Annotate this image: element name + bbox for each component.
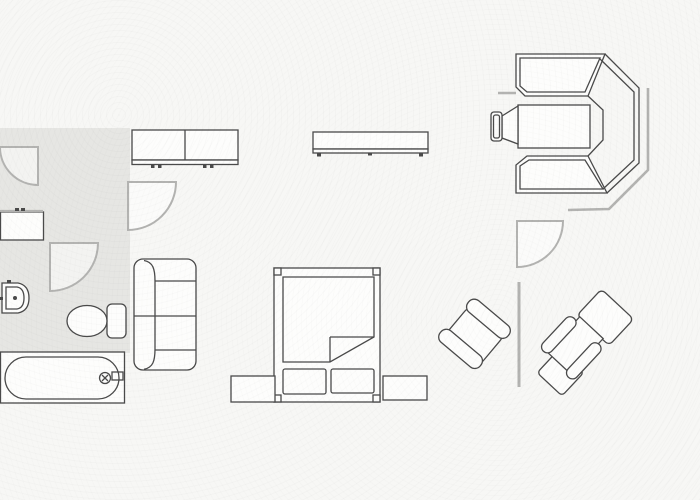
wall-cabinet [0, 208, 44, 240]
bed-post [373, 268, 380, 275]
toilet [67, 304, 126, 338]
toilet-cistern [107, 304, 126, 338]
bathtub [1, 352, 125, 403]
nightstand-left [231, 376, 275, 402]
floor-plan [0, 0, 700, 500]
sofa [134, 259, 196, 370]
corner-workstation [491, 54, 639, 193]
pillow [283, 369, 326, 394]
nightstand-right [383, 376, 427, 400]
armchair-left [436, 295, 513, 373]
floor-plan-canvas [0, 0, 700, 500]
armchair-right [525, 285, 633, 396]
bed-post [373, 395, 380, 402]
sofa-body [134, 259, 196, 370]
sideboard-body [313, 132, 428, 149]
top-counter [516, 54, 605, 96]
bed-post [274, 268, 281, 275]
double-bed [274, 268, 380, 402]
desk-chair [491, 106, 518, 144]
wardrobe [132, 130, 238, 168]
wardrobe-feet [151, 165, 214, 168]
pillow [331, 369, 374, 393]
desk-table [518, 105, 590, 148]
sideboard-plinth [313, 149, 428, 153]
door-swing-right-icon [517, 221, 563, 267]
desk-chair-back [491, 112, 502, 141]
sideboard [313, 132, 428, 157]
toilet-bowl [67, 306, 107, 337]
wardrobe-plinth [132, 160, 238, 165]
tap-icon [13, 296, 17, 300]
desk-chair-seat [502, 106, 518, 144]
door-swing-hall-icon [128, 182, 176, 230]
